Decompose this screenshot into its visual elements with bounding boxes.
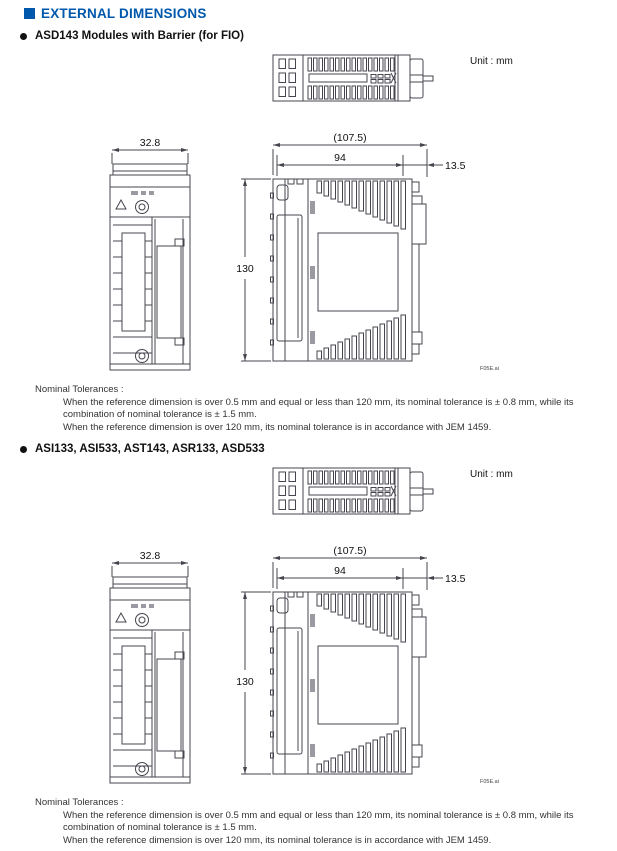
tolerance-line: When the reference dimension is over 0.5… <box>63 397 617 410</box>
top-view <box>273 55 433 101</box>
svg-text:32.8: 32.8 <box>140 137 161 149</box>
side-label-area <box>318 646 398 724</box>
dim-overall-depth: (107.5) <box>273 132 427 177</box>
top-screw <box>136 201 149 214</box>
page-title: EXTERNAL DIMENSIONS <box>41 6 207 21</box>
drawing-area-2: Unit : mm <box>95 459 617 794</box>
din-clip <box>410 472 423 511</box>
dimension-drawing-svg: Unit : mm <box>95 46 615 381</box>
svg-text:94: 94 <box>334 152 346 164</box>
side-label-area <box>318 233 398 311</box>
front-panel <box>157 246 181 338</box>
tolerance-line: When the reference dimension is over 120… <box>63 835 617 848</box>
din-rail-wing <box>412 204 426 244</box>
document-page: EXTERNAL DIMENSIONS ASD143 Modules with … <box>0 0 617 851</box>
bottom-screw <box>136 350 149 363</box>
dim-height: 130 <box>236 592 271 774</box>
svg-text:(107.5): (107.5) <box>333 132 366 144</box>
tolerance-title: Nominal Tolerances : <box>35 797 617 810</box>
section-title: ASD143 Modules with Barrier (for FIO) <box>35 30 244 42</box>
tolerance-note-2: Nominal Tolerances : When the reference … <box>35 797 617 847</box>
svg-text:130: 130 <box>236 263 254 275</box>
front-logo-mark <box>131 191 138 195</box>
warning-triangle-icon <box>116 200 126 209</box>
din-clip-handle <box>423 76 433 81</box>
side-bottom-vents <box>317 728 406 772</box>
din-rail-wing <box>412 617 426 657</box>
svg-text:32.8: 32.8 <box>140 550 161 562</box>
side-top-vents <box>317 181 406 229</box>
top-view-terminal-cluster <box>371 75 390 84</box>
side-view <box>271 592 427 774</box>
tolerance-line: When the reference dimension is over 0.5… <box>63 810 617 823</box>
section-title: ASI133, ASI533, AST143, ASR133, ASD533 <box>35 443 265 455</box>
terminal-cover <box>122 233 145 331</box>
section-bullet-icon <box>20 33 27 40</box>
page-header: EXTERNAL DIMENSIONS <box>24 6 617 21</box>
dim-height: 130 <box>236 179 271 361</box>
tolerance-line: combination of nominal tolerance is ± 1.… <box>63 409 617 422</box>
svg-text:130: 130 <box>236 676 254 688</box>
front-panel <box>157 659 181 751</box>
top-view-left-slots <box>279 472 296 510</box>
top-view-left-slots <box>279 59 296 97</box>
svg-text:13.5: 13.5 <box>445 160 466 172</box>
dim-overall-depth: (107.5) <box>273 545 427 590</box>
header-square-icon <box>24 8 35 19</box>
unit-label: Unit : mm <box>470 469 513 480</box>
top-view <box>273 468 433 514</box>
section-asi133-heading: ASI133, ASI533, AST143, ASR133, ASD533 <box>20 443 617 455</box>
dim-body-depth: 94 <box>277 565 403 589</box>
top-screw <box>136 614 149 627</box>
dim-body-depth: 94 <box>277 152 403 176</box>
dim-front-width: 32.8 <box>112 137 188 164</box>
section-asd143-heading: ASD143 Modules with Barrier (for FIO) <box>20 30 617 42</box>
side-top-vents <box>317 594 406 642</box>
top-view-vent-slats-bottom <box>308 499 394 512</box>
svg-text:13.5: 13.5 <box>445 573 466 585</box>
file-label: F05E.ai <box>480 366 499 372</box>
warning-triangle-icon <box>116 613 126 622</box>
side-view <box>271 179 427 361</box>
drawing-area-1: Unit : mm <box>95 46 617 381</box>
top-view-terminal-cluster <box>371 488 390 497</box>
svg-text:(107.5): (107.5) <box>333 545 366 557</box>
top-view-vent-slats-top <box>308 471 394 484</box>
terminal-cover <box>122 646 145 744</box>
section-bullet-icon <box>20 446 27 453</box>
tolerance-note-1: Nominal Tolerances : When the reference … <box>35 384 617 434</box>
din-clip <box>410 59 423 98</box>
file-label: F05E.ai <box>480 779 499 785</box>
svg-text:94: 94 <box>334 565 346 577</box>
side-bottom-vents <box>317 315 406 359</box>
top-view-vent-slats-top <box>308 58 394 71</box>
front-view <box>110 577 190 783</box>
dim-din-depth: 13.5 <box>403 573 466 585</box>
front-logo-mark <box>131 604 138 608</box>
tolerance-title: Nominal Tolerances : <box>35 384 617 397</box>
dim-din-depth: 13.5 <box>403 160 466 172</box>
top-view-vent-slats-bottom <box>308 86 394 99</box>
dimension-drawing-svg: Unit : mm <box>95 459 615 794</box>
din-clip-handle <box>423 489 433 494</box>
tolerance-line: When the reference dimension is over 120… <box>63 422 617 435</box>
front-view <box>110 164 190 370</box>
dim-front-width: 32.8 <box>112 550 188 577</box>
tolerance-line: combination of nominal tolerance is ± 1.… <box>63 822 617 835</box>
unit-label: Unit : mm <box>470 56 513 67</box>
bottom-screw <box>136 763 149 776</box>
